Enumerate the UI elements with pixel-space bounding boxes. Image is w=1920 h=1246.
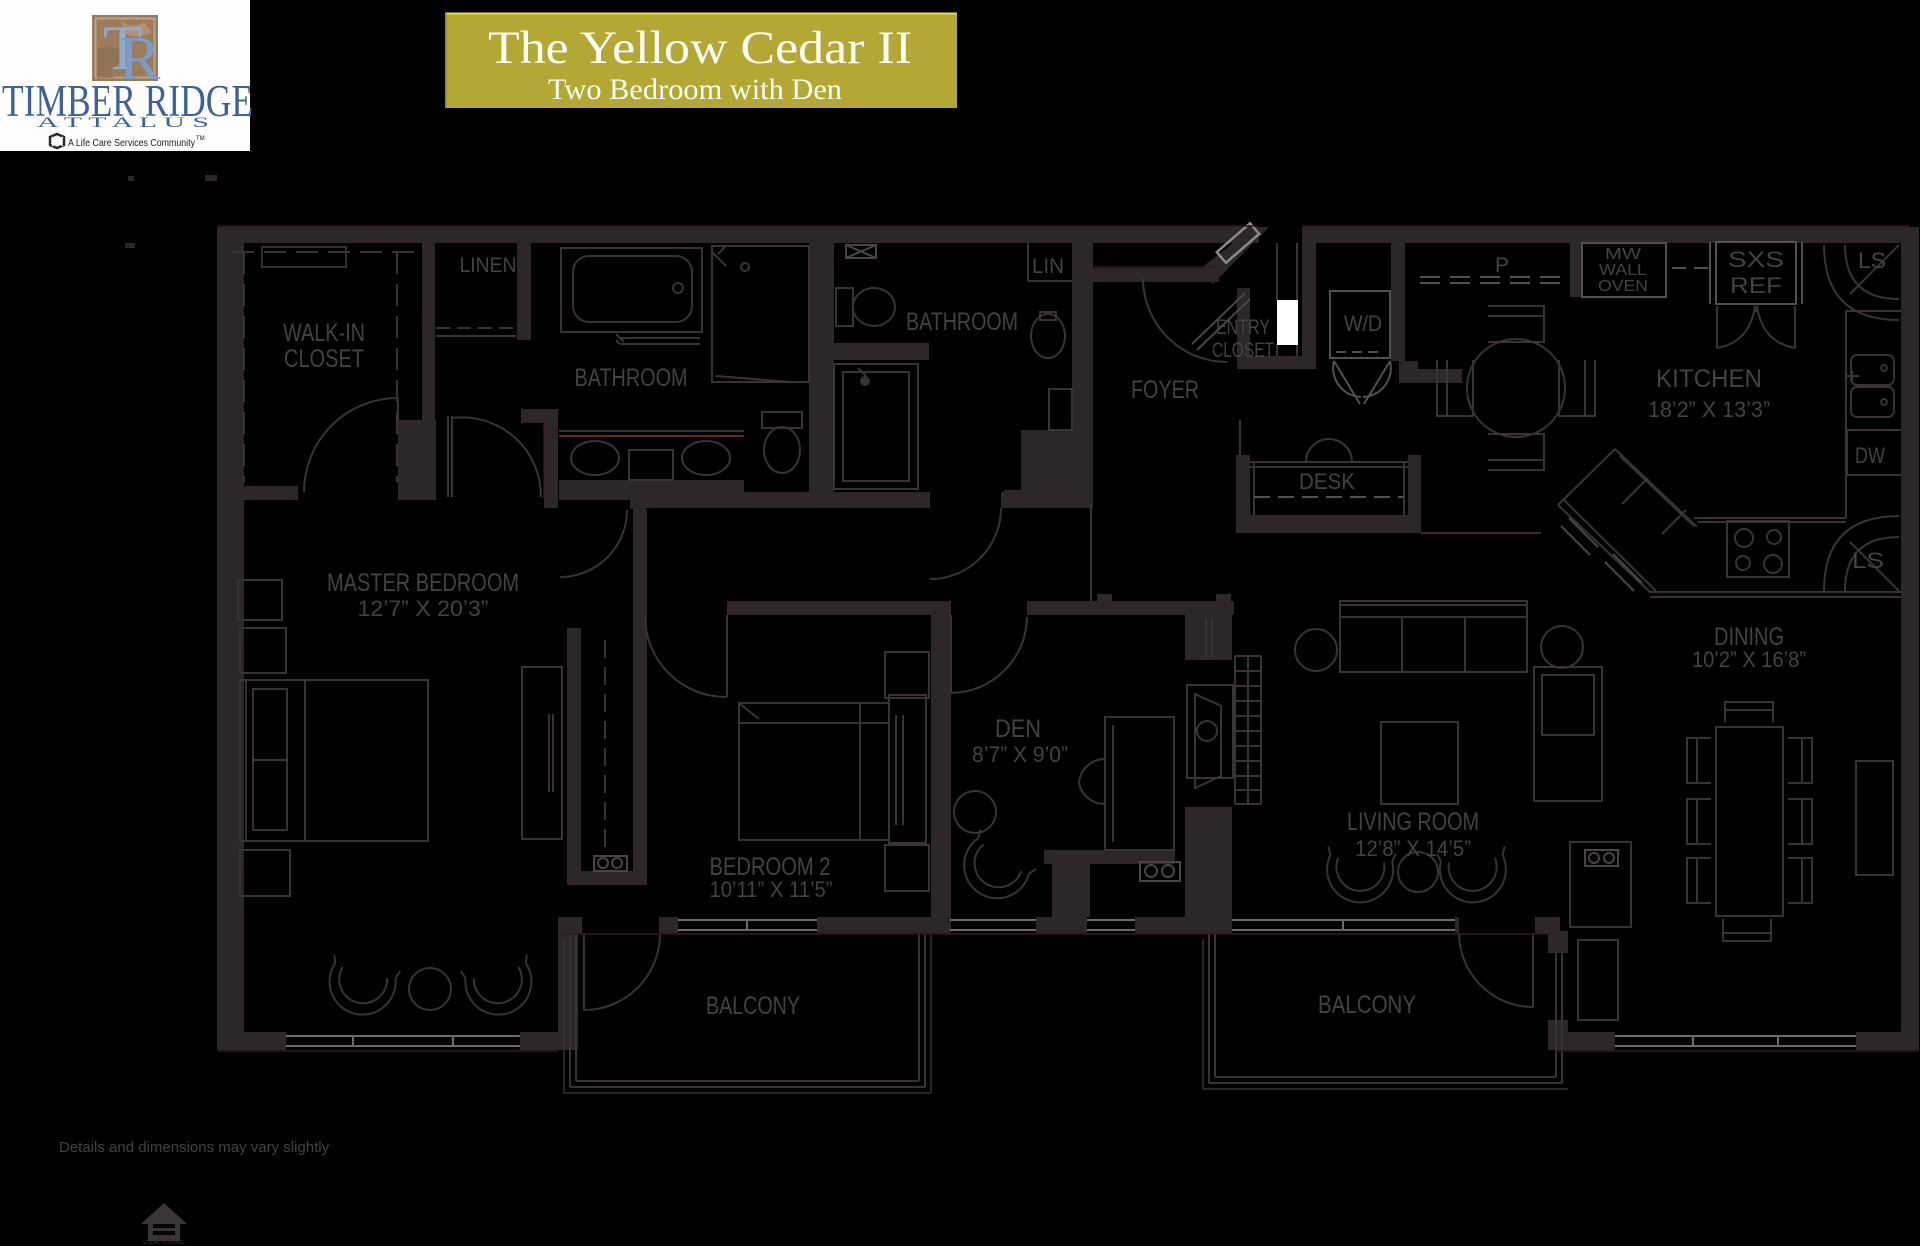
svg-text:A Life Care Services Community: A Life Care Services Community [68,137,196,149]
svg-text:A T T A L U S: A T T A L U S [37,115,209,131]
svg-text:BATHROOM: BATHROOM [575,364,688,392]
svg-text:12’8” X 14’5”: 12’8” X 14’5” [1355,836,1471,861]
svg-text:DESK: DESK [1299,469,1355,494]
svg-text:18’2” X 13’3”: 18’2” X 13’3” [1648,397,1770,422]
svg-text:SXS: SXS [1728,247,1784,272]
svg-text:TM: TM [196,136,205,142]
svg-text:The Yellow Cedar II: The Yellow Cedar II [488,22,912,74]
svg-text:OVEN: OVEN [1598,278,1648,295]
svg-text:10’2” X 16’8”: 10’2” X 16’8” [1692,647,1806,672]
svg-text:WALK-IN: WALK-IN [283,319,365,347]
svg-text:LINEN: LINEN [460,254,517,277]
svg-text:W/D: W/D [1344,311,1382,336]
svg-text:EQUAL HOUSING: EQUAL HOUSING [143,1240,185,1246]
svg-text:WALL: WALL [1599,262,1647,279]
svg-text:LS: LS [1858,248,1886,273]
svg-text:BALCONY: BALCONY [1318,991,1416,1019]
svg-text:BATHROOM: BATHROOM [906,308,1018,336]
svg-text:8’7” X 9’0”: 8’7” X 9’0” [972,742,1068,767]
svg-text:DEN: DEN [995,715,1041,743]
svg-text:FOYER: FOYER [1131,376,1199,404]
svg-text:DW: DW [1855,443,1885,468]
svg-text:MASTER BEDROOM: MASTER BEDROOM [327,569,519,597]
svg-text:CLOSET: CLOSET [284,345,364,373]
svg-text:Details and dimensions may var: Details and dimensions may vary slightly [59,1139,330,1156]
svg-text:KITCHEN: KITCHEN [1656,365,1762,393]
svg-text:12’7” X 20’3”: 12’7” X 20’3” [358,596,489,621]
svg-text:BALCONY: BALCONY [706,992,800,1020]
svg-text:LIN: LIN [1032,255,1064,278]
svg-text:ENTRY: ENTRY [1216,316,1270,339]
svg-text:10’11” X 11’5”: 10’11” X 11’5” [710,877,833,902]
svg-text:LIVING ROOM: LIVING ROOM [1347,808,1479,836]
svg-text:Two Bedroom with Den: Two Bedroom with Den [548,73,842,106]
svg-text:LS: LS [1852,548,1884,573]
svg-text:P: P [1495,254,1509,277]
svg-text:REF: REF [1730,273,1782,298]
svg-text:MW: MW [1605,246,1642,263]
svg-text:CLOSET: CLOSET [1212,339,1274,362]
